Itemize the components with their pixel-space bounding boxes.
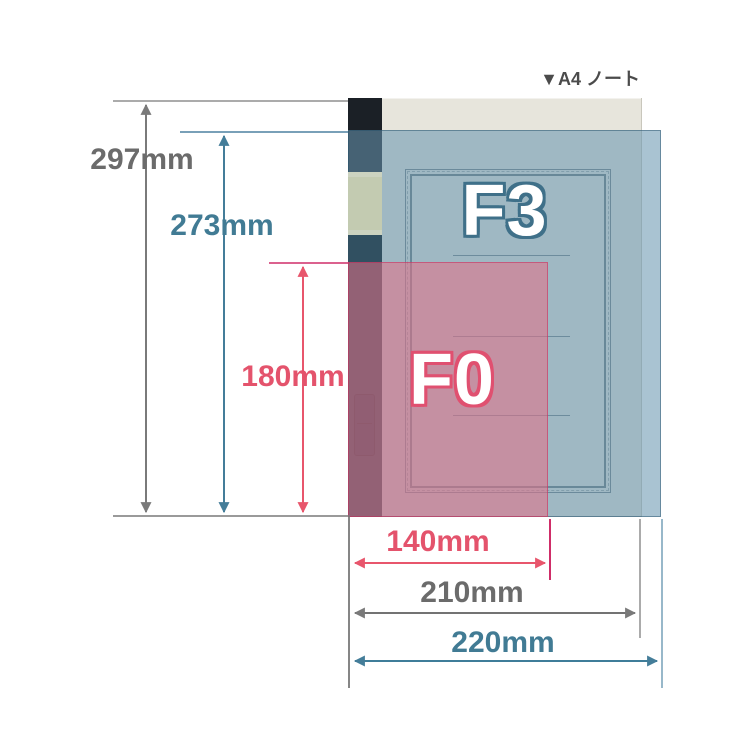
f0-size-overlay: F0 bbox=[348, 262, 548, 517]
f0-size-label: F0 bbox=[409, 344, 495, 416]
dimension-f3-height: 273mm bbox=[170, 211, 273, 241]
dimension-f0-height: 180mm bbox=[241, 362, 344, 392]
f3-size-label: F3 bbox=[461, 175, 547, 247]
dimension-f0-width: 140mm bbox=[386, 527, 489, 557]
dimension-a4-width: 210mm bbox=[420, 578, 523, 608]
a4-notebook-tag: ▼A4 ノート bbox=[540, 65, 640, 91]
spine-label-band bbox=[348, 177, 382, 230]
dimension-f3-width: 220mm bbox=[451, 628, 554, 658]
size-comparison-diagram: F3 F0 bbox=[0, 0, 750, 750]
dimension-a4-height: 297mm bbox=[90, 145, 193, 175]
